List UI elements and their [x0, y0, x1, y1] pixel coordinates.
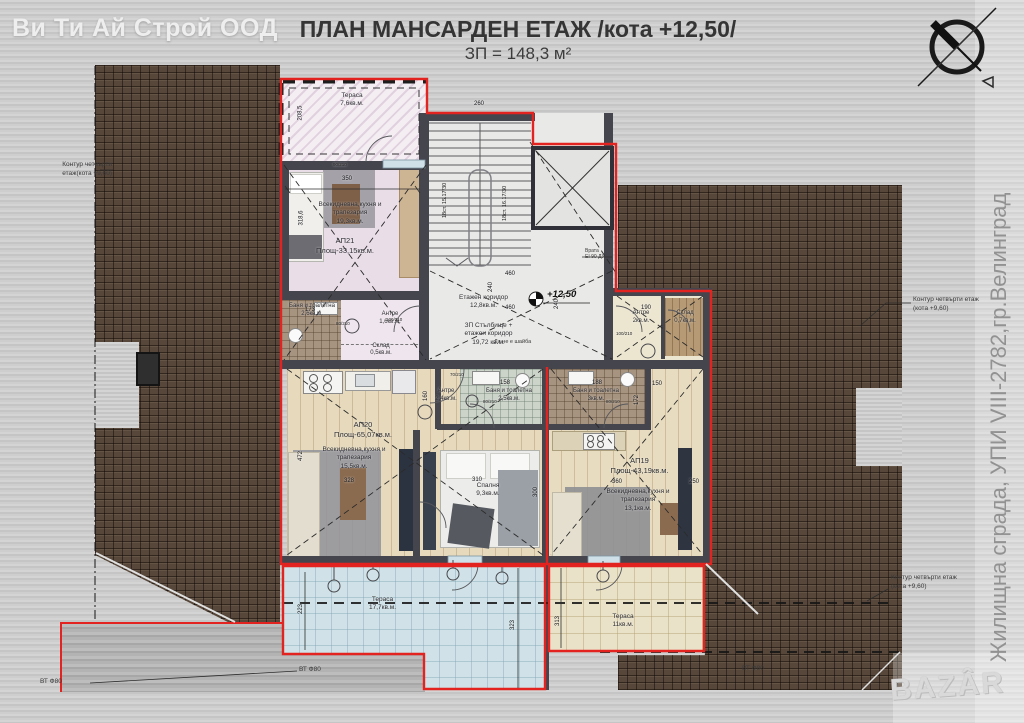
ap20-terrace-label: Тераса 17,7кв.м.: [345, 596, 420, 613]
project-side-text: Жилищна сграда, УПИ VIII-2782,гр.Велингр…: [986, 62, 1012, 662]
ap19-name-label: АП19 Площ-43,19кв.м.: [582, 456, 697, 476]
dim-460-a: 460: [505, 271, 515, 277]
ap19-stove-burner: [597, 441, 604, 448]
ap19-storage-floor: [665, 298, 704, 356]
dim-310: 310: [472, 477, 482, 483]
dim-240-a: 240: [488, 282, 494, 292]
dim-173: 173: [305, 307, 315, 313]
ap20-living-label: Всекидневна,кухня и трапезария 15,5кв.м.: [302, 446, 406, 471]
dim-172: 172: [634, 395, 640, 405]
ap20-stove: [303, 371, 343, 394]
door-size-tag: 80/210: [483, 399, 497, 404]
dim-318-6: 318,6: [299, 210, 305, 225]
chimney: [136, 352, 160, 386]
stair-flight-left-label: 18ст. 15.17/30: [442, 168, 448, 218]
fire-door-note: Врата EI 90 ДУ: [585, 248, 605, 260]
contour-note-left: Контур четвърти етаж(кота +9,60): [24, 161, 112, 179]
ap20-terrace-floor-ext: [423, 565, 545, 690]
door-size-tag: 80/210: [606, 399, 620, 404]
dim-188: 188: [592, 380, 602, 386]
pipe-note-right: ВТ Ф80: [742, 665, 764, 672]
ap20-bed-throw: [447, 503, 494, 548]
ap20-stove-burner: [309, 374, 318, 383]
ap19-living-label: Всекидневна,кухня и трапезария 13,1кв.м.: [588, 488, 688, 513]
pipe-note-mid: ВТ Ф80: [299, 666, 321, 673]
door-size-tag: 100/210: [616, 331, 632, 336]
dim-323: 323: [510, 620, 516, 630]
dim-460-b: 460: [505, 305, 515, 311]
ap20-fridge: [392, 370, 416, 394]
pipe-note-left: ВТ Ф80: [40, 678, 62, 685]
door-size-tag: 90/210: [333, 162, 347, 167]
ap20-toilet: [515, 373, 530, 388]
roof-left-notch: [95, 342, 139, 428]
contour-note-right-bottom: Контур четвърти етаж (кота +9,60): [891, 574, 991, 592]
dim-350: 350: [342, 176, 352, 182]
ap20-bed-pillow: [446, 453, 486, 479]
floor-plan-scan: Ви Ти Ай Строй ООД ПЛАН МАНСАРДЕН ЕТАЖ /…: [0, 0, 1024, 723]
ap19-sofa: [552, 492, 582, 560]
dim-250: 250: [689, 479, 699, 485]
door-size-tag: 80/210: [336, 321, 350, 326]
ap19-terrace-label: Тераса 11кв.м.: [583, 613, 663, 630]
dim-360: 360: [612, 479, 622, 485]
dim-313: 313: [555, 616, 561, 626]
dim-158: 158: [500, 380, 510, 386]
dim-208-5: 208,5: [298, 105, 304, 120]
ap21-name-label: АП21 Площ-33,15кв.м.: [290, 236, 400, 256]
stair-total-label: ЗП Стълбище + етажен коридор 19,72 кв.м.: [436, 322, 541, 347]
dim-160: 160: [423, 391, 429, 401]
ap19-storage-label: Склад 0,7кв.м.: [662, 310, 708, 326]
ap20-wardrobe: [423, 452, 436, 550]
ap19-antre-label: Антре 2кв.м.: [618, 310, 664, 326]
ap19-stove-burner: [587, 441, 594, 448]
page-subtitle: ЗП = 148,3 м²: [258, 44, 778, 64]
company-watermark: Ви Ти Ай Строй ООД: [12, 14, 278, 43]
ap20-bath-sink: [472, 371, 500, 385]
ap19-bath-sink: [568, 371, 594, 385]
ap20-coffee-table: [340, 468, 366, 520]
ap21-toilet: [288, 328, 303, 343]
corridor-label: Етажен коридор 12,8кв.м.: [436, 294, 531, 311]
ap20-stove-burner: [323, 374, 332, 383]
corridor-floor: [428, 271, 612, 362]
ap20-sink: [355, 374, 375, 387]
page-title: ПЛАН МАНСАРДЕН ЕТАЖ /кота +12,50/: [258, 16, 778, 43]
dim-328: 328: [344, 478, 354, 484]
dim-300: 300: [533, 487, 539, 497]
ap19-terrace-floor: [549, 565, 704, 651]
ap20-bedroom-label: Спалня 9,3кв.м.: [458, 482, 518, 499]
ap20-antre-label: Антре 2,4кв.м.: [422, 388, 470, 404]
dim-240-b: 240: [554, 299, 560, 309]
ap21-terrace-label: Тераса 7,6кв.м.: [312, 92, 392, 109]
dim-190: 190: [641, 305, 651, 311]
door-size-tag: 70/210: [450, 372, 464, 377]
ap21-living-label: Всекидневна,кухня и трапезария 19,3кв.м.: [294, 201, 406, 226]
level-mark-text: +12,50: [547, 289, 576, 300]
ap21-storage-label: Склад 0,5кв.м.: [350, 343, 412, 357]
ap20-stove-burner: [309, 383, 318, 392]
ap21-bed-pillow: [290, 174, 322, 194]
dim-223: 223: [298, 604, 304, 614]
dim-150: 150: [652, 381, 662, 387]
ap19-toilet: [620, 372, 635, 387]
roof-right-notch: [856, 388, 902, 466]
ap20-name-label: АП20 Площ-65,07кв.м.: [303, 420, 423, 440]
door-size-tag: 100/210: [386, 317, 402, 322]
ap20-stove-burner: [323, 383, 332, 392]
dim-260: 260: [474, 101, 484, 107]
ap19-bath-label: Баня и тоалетна 3кв.м.: [556, 388, 636, 404]
dim-472: 472: [298, 451, 304, 461]
stair-flight-right-label: 18ст. 16.17/30: [502, 171, 508, 221]
